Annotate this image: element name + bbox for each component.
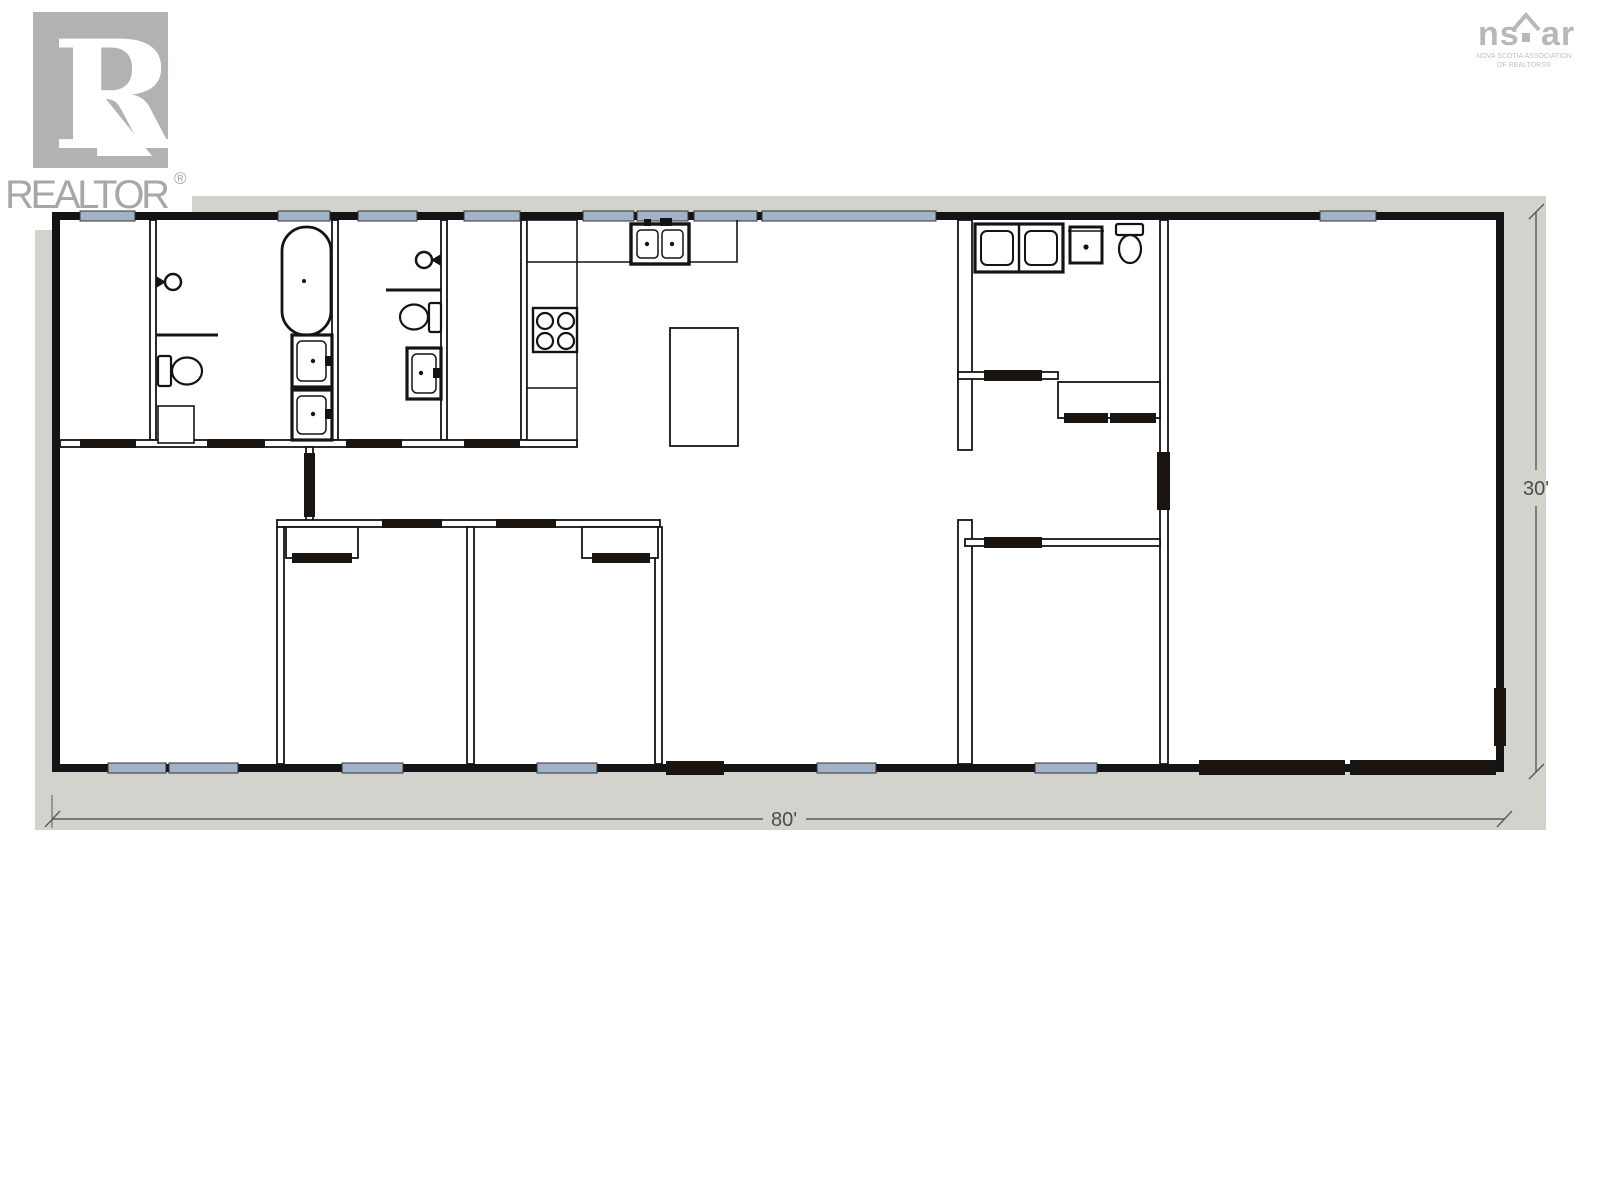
door-opening [346, 439, 402, 448]
nsar-logo: ns ar NOVA SCOTIA ASSOCIATION OF REALTOR… [1476, 15, 1575, 69]
garage-door [1350, 760, 1496, 775]
nsar-right-text: ar [1541, 15, 1575, 53]
closet-doors-icon [292, 553, 352, 563]
vanity-sink-icon [407, 348, 441, 399]
window [817, 763, 876, 773]
double-kitchen-sink-icon [631, 218, 689, 264]
window [169, 763, 238, 773]
closet-doors-icon [1110, 413, 1156, 423]
toilet-icon [400, 303, 441, 332]
door-opening [382, 519, 442, 528]
laundry-sink-icon [1068, 227, 1104, 263]
wall [958, 520, 972, 764]
wall [655, 527, 662, 764]
wall [467, 527, 474, 764]
door-opening [496, 519, 556, 528]
closet-doors-icon [592, 553, 650, 563]
nsar-house-icon [1522, 33, 1530, 42]
wall [277, 520, 660, 527]
door-opening [80, 439, 136, 448]
washer-dryer-icon [975, 224, 1063, 272]
stove-burners-icon [533, 308, 577, 352]
nsar-subtext-line2: OF REALTORS® [1497, 61, 1552, 69]
window [537, 763, 597, 773]
realtor-r-icon: R [52, 8, 178, 184]
nsar-left-text: ns [1478, 15, 1520, 53]
toilet-icon [1116, 224, 1143, 263]
door-opening [464, 439, 520, 448]
side-door [1494, 688, 1506, 746]
door-opening [304, 453, 315, 517]
window [80, 211, 135, 221]
bathtub-icon [282, 227, 331, 335]
wall [277, 527, 284, 764]
realtor-logo: R REALTOR ® [0, 0, 192, 230]
window [1035, 763, 1097, 773]
window [342, 763, 403, 773]
wall [958, 220, 972, 450]
building-shell [52, 212, 1504, 772]
vanity-sink-icon [292, 390, 332, 440]
window [694, 211, 757, 221]
wall [521, 220, 527, 440]
height-dimension-label: 30' [1523, 478, 1549, 500]
wall [150, 220, 156, 440]
width-dimension-label: 80' [771, 809, 797, 831]
window [1320, 211, 1376, 221]
floor-plan-page: R REALTOR ® ns ar NOVA SCOTIA ASSOCIATIO… [0, 0, 1600, 1200]
window [278, 211, 330, 221]
window [762, 211, 936, 221]
vanity-sink-icon [292, 335, 332, 387]
front-door [666, 761, 724, 775]
door-opening [207, 439, 265, 448]
window [464, 211, 520, 221]
kitchen-island-icon [670, 328, 738, 446]
floor-area [52, 212, 1504, 772]
toilet-icon [158, 356, 202, 386]
nsar-subtext-line1: NOVA SCOTIA ASSOCIATION [1476, 53, 1571, 60]
linen-closet [158, 406, 194, 443]
closet-doors-icon [1064, 413, 1108, 423]
garage-door [1199, 760, 1345, 775]
closet-hall [1058, 382, 1160, 418]
door-opening [984, 370, 1042, 381]
realtor-registered-mark: ® [174, 169, 187, 188]
window [108, 763, 166, 773]
window [358, 211, 417, 221]
realtor-wordmark: REALTOR [5, 173, 173, 217]
door-opening [1157, 452, 1170, 510]
window [583, 211, 634, 221]
door-opening [984, 537, 1042, 548]
